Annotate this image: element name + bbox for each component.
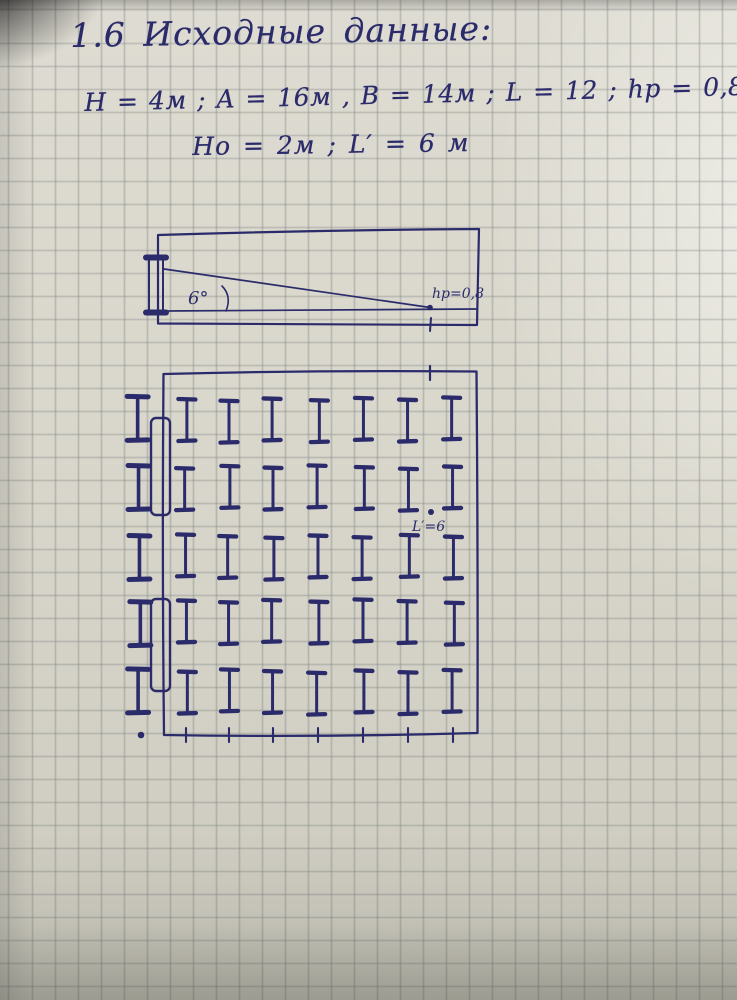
luminaire-grid — [127, 396, 463, 742]
side-view-diagram: 6° hp=0,8 — [130, 218, 500, 340]
angle-arc — [222, 286, 228, 311]
spacing-label: L′=6 — [411, 519, 445, 535]
corner-dot — [138, 732, 145, 739]
measure-point — [427, 305, 433, 311]
section-title: 1.6 Исходные данные: — [70, 9, 492, 55]
wall-fixture — [151, 599, 170, 691]
suspension-height-label: hp=0,8 — [432, 286, 484, 302]
given-data-line-2: Hо = 2м ; L′ = 6 м — [192, 128, 470, 161]
lamp-symbol — [146, 257, 166, 313]
wall-fixture — [151, 418, 170, 515]
plan-view-diagram: L′=6 — [120, 360, 500, 750]
spacing-point — [428, 509, 434, 515]
angle-label: 6° — [188, 288, 208, 309]
notebook-page: 1.6 Исходные данные: H = 4м ; A = 16м , … — [0, 0, 737, 1000]
measure-tick — [430, 318, 431, 331]
